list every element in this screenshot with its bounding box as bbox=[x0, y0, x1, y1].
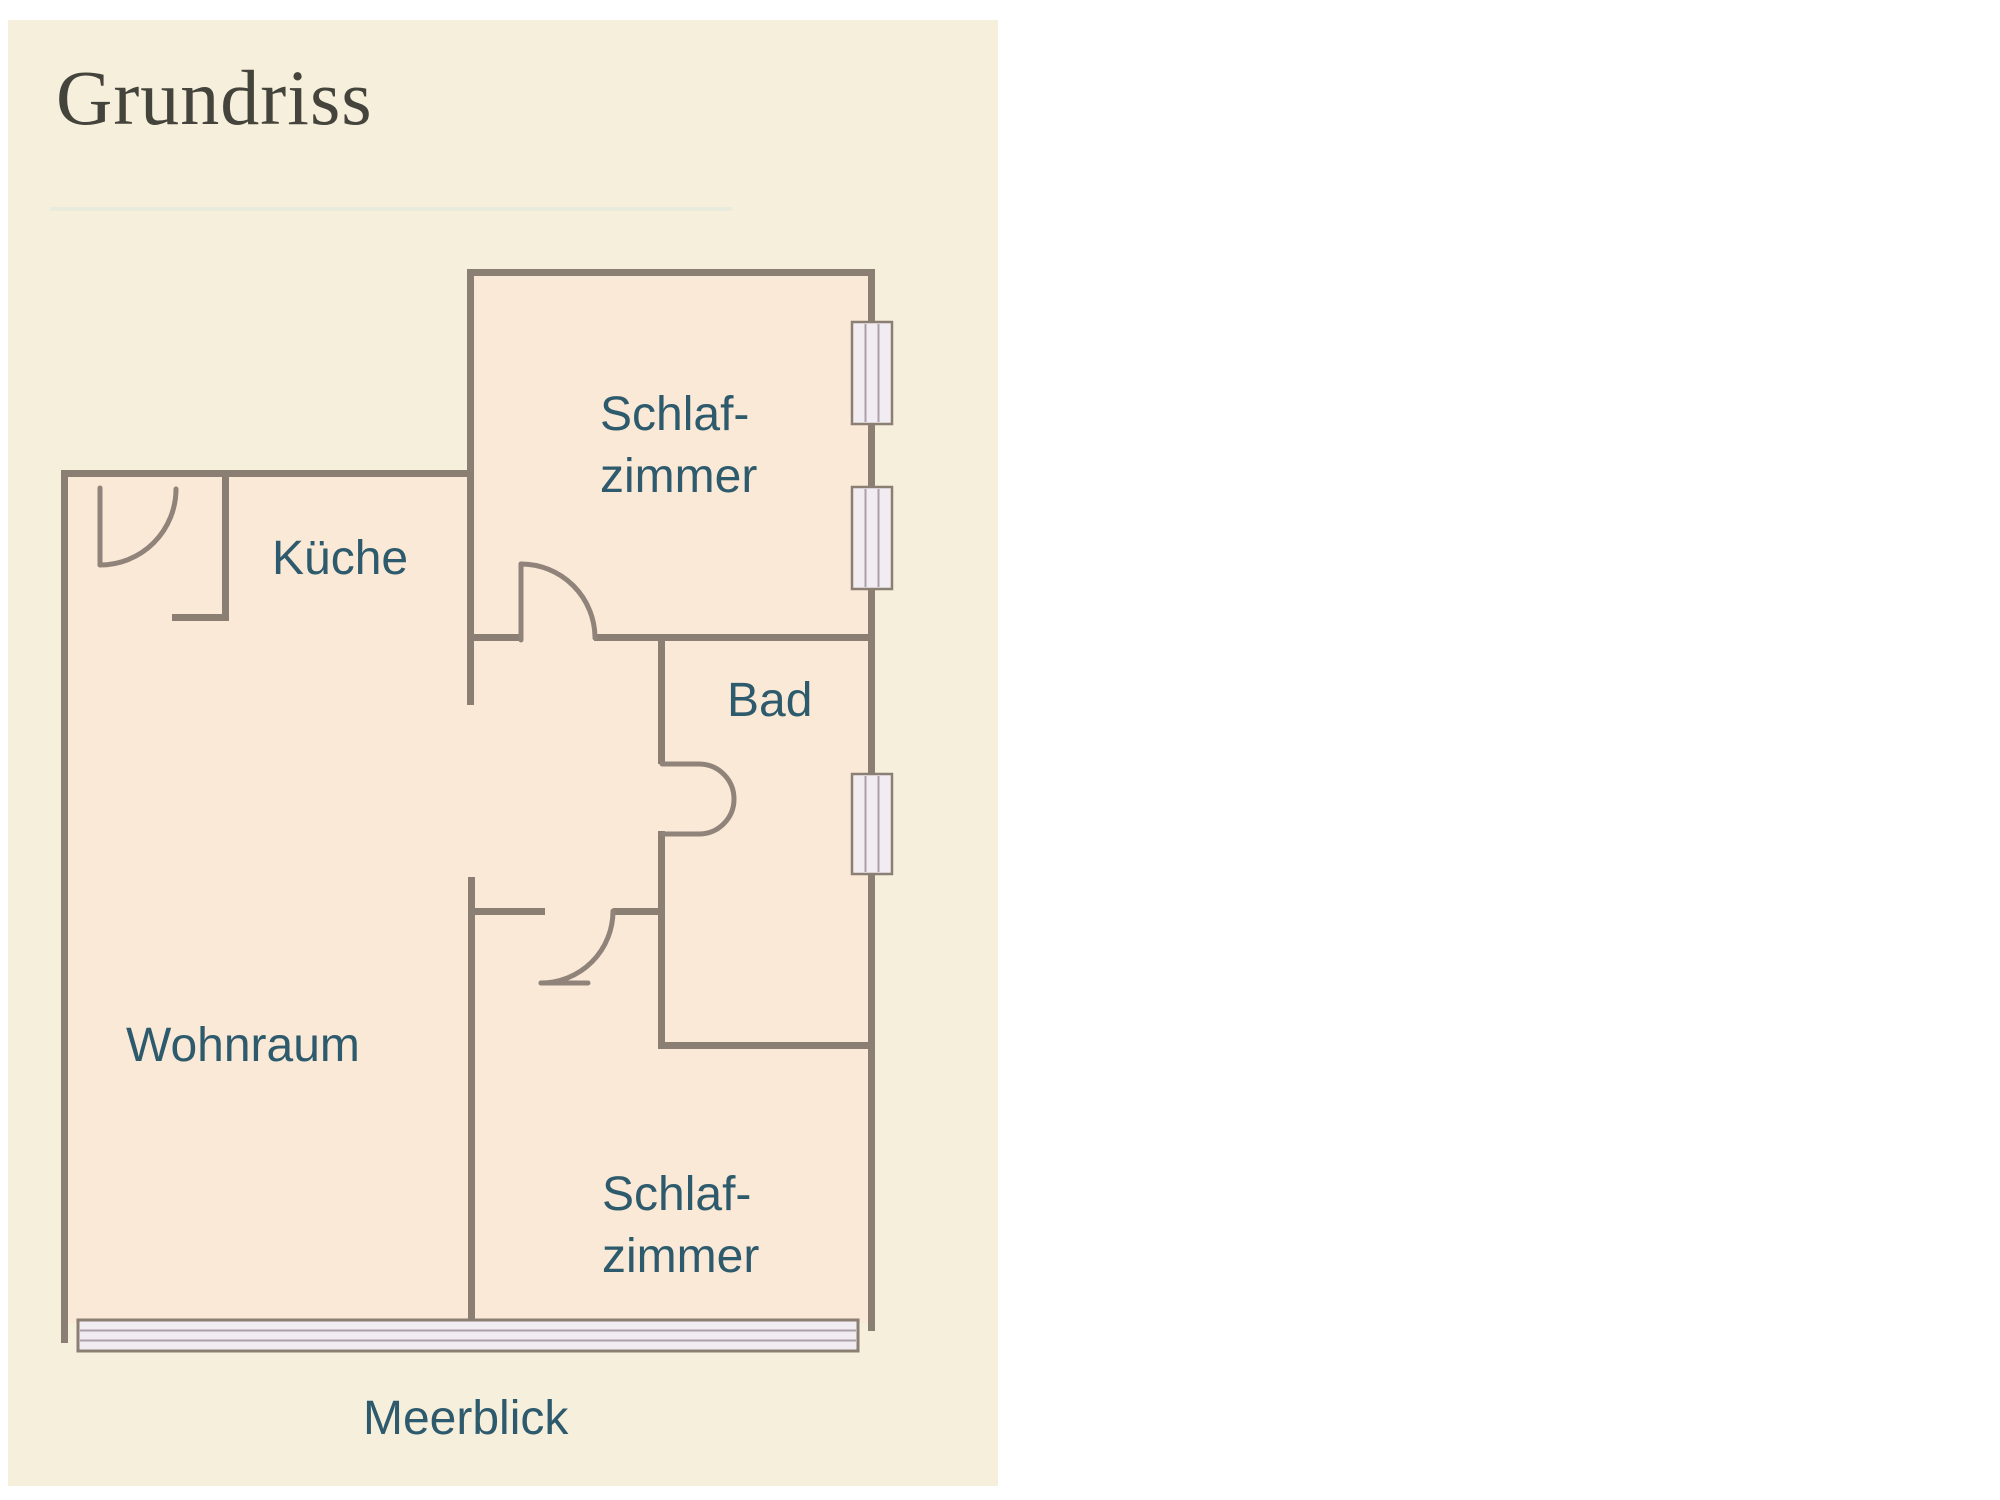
window-symbol bbox=[852, 322, 892, 424]
room-label-line: zimmer bbox=[600, 450, 757, 503]
panorama-window-symbol bbox=[78, 1320, 858, 1351]
view-label-meerblick: Meerblick bbox=[363, 1395, 568, 1443]
room-label-schlafzimmer-top: Schlaf-zimmer bbox=[600, 384, 757, 508]
wall-segment bbox=[613, 908, 665, 915]
wall-segment bbox=[222, 470, 229, 621]
room-label-kueche: Küche bbox=[272, 535, 408, 583]
wall-segment bbox=[658, 831, 665, 1047]
room-label-line: Schlaf- bbox=[600, 388, 749, 441]
room-label-schlafzimmer-bottom: Schlaf-zimmer bbox=[602, 1164, 759, 1288]
wall-segment bbox=[658, 1042, 875, 1049]
window-symbol bbox=[852, 487, 892, 589]
room-label-wohnraum: Wohnraum bbox=[126, 1022, 360, 1070]
wall-segment bbox=[467, 269, 875, 276]
wall-segment bbox=[658, 634, 665, 764]
wall-segment bbox=[172, 614, 229, 621]
floorplan-drawing bbox=[0, 0, 2000, 1500]
room-label-bad: Bad bbox=[727, 677, 812, 725]
wall-segment bbox=[467, 634, 523, 641]
wall-segment bbox=[468, 908, 545, 915]
window-symbol bbox=[852, 774, 892, 874]
room-label-line: Schlaf- bbox=[602, 1168, 751, 1221]
room-label-line: zimmer bbox=[602, 1230, 759, 1283]
wall-segment bbox=[594, 634, 875, 641]
wall-segment bbox=[468, 877, 475, 1323]
wall-segment bbox=[61, 470, 68, 1343]
wall-segment bbox=[61, 470, 471, 477]
